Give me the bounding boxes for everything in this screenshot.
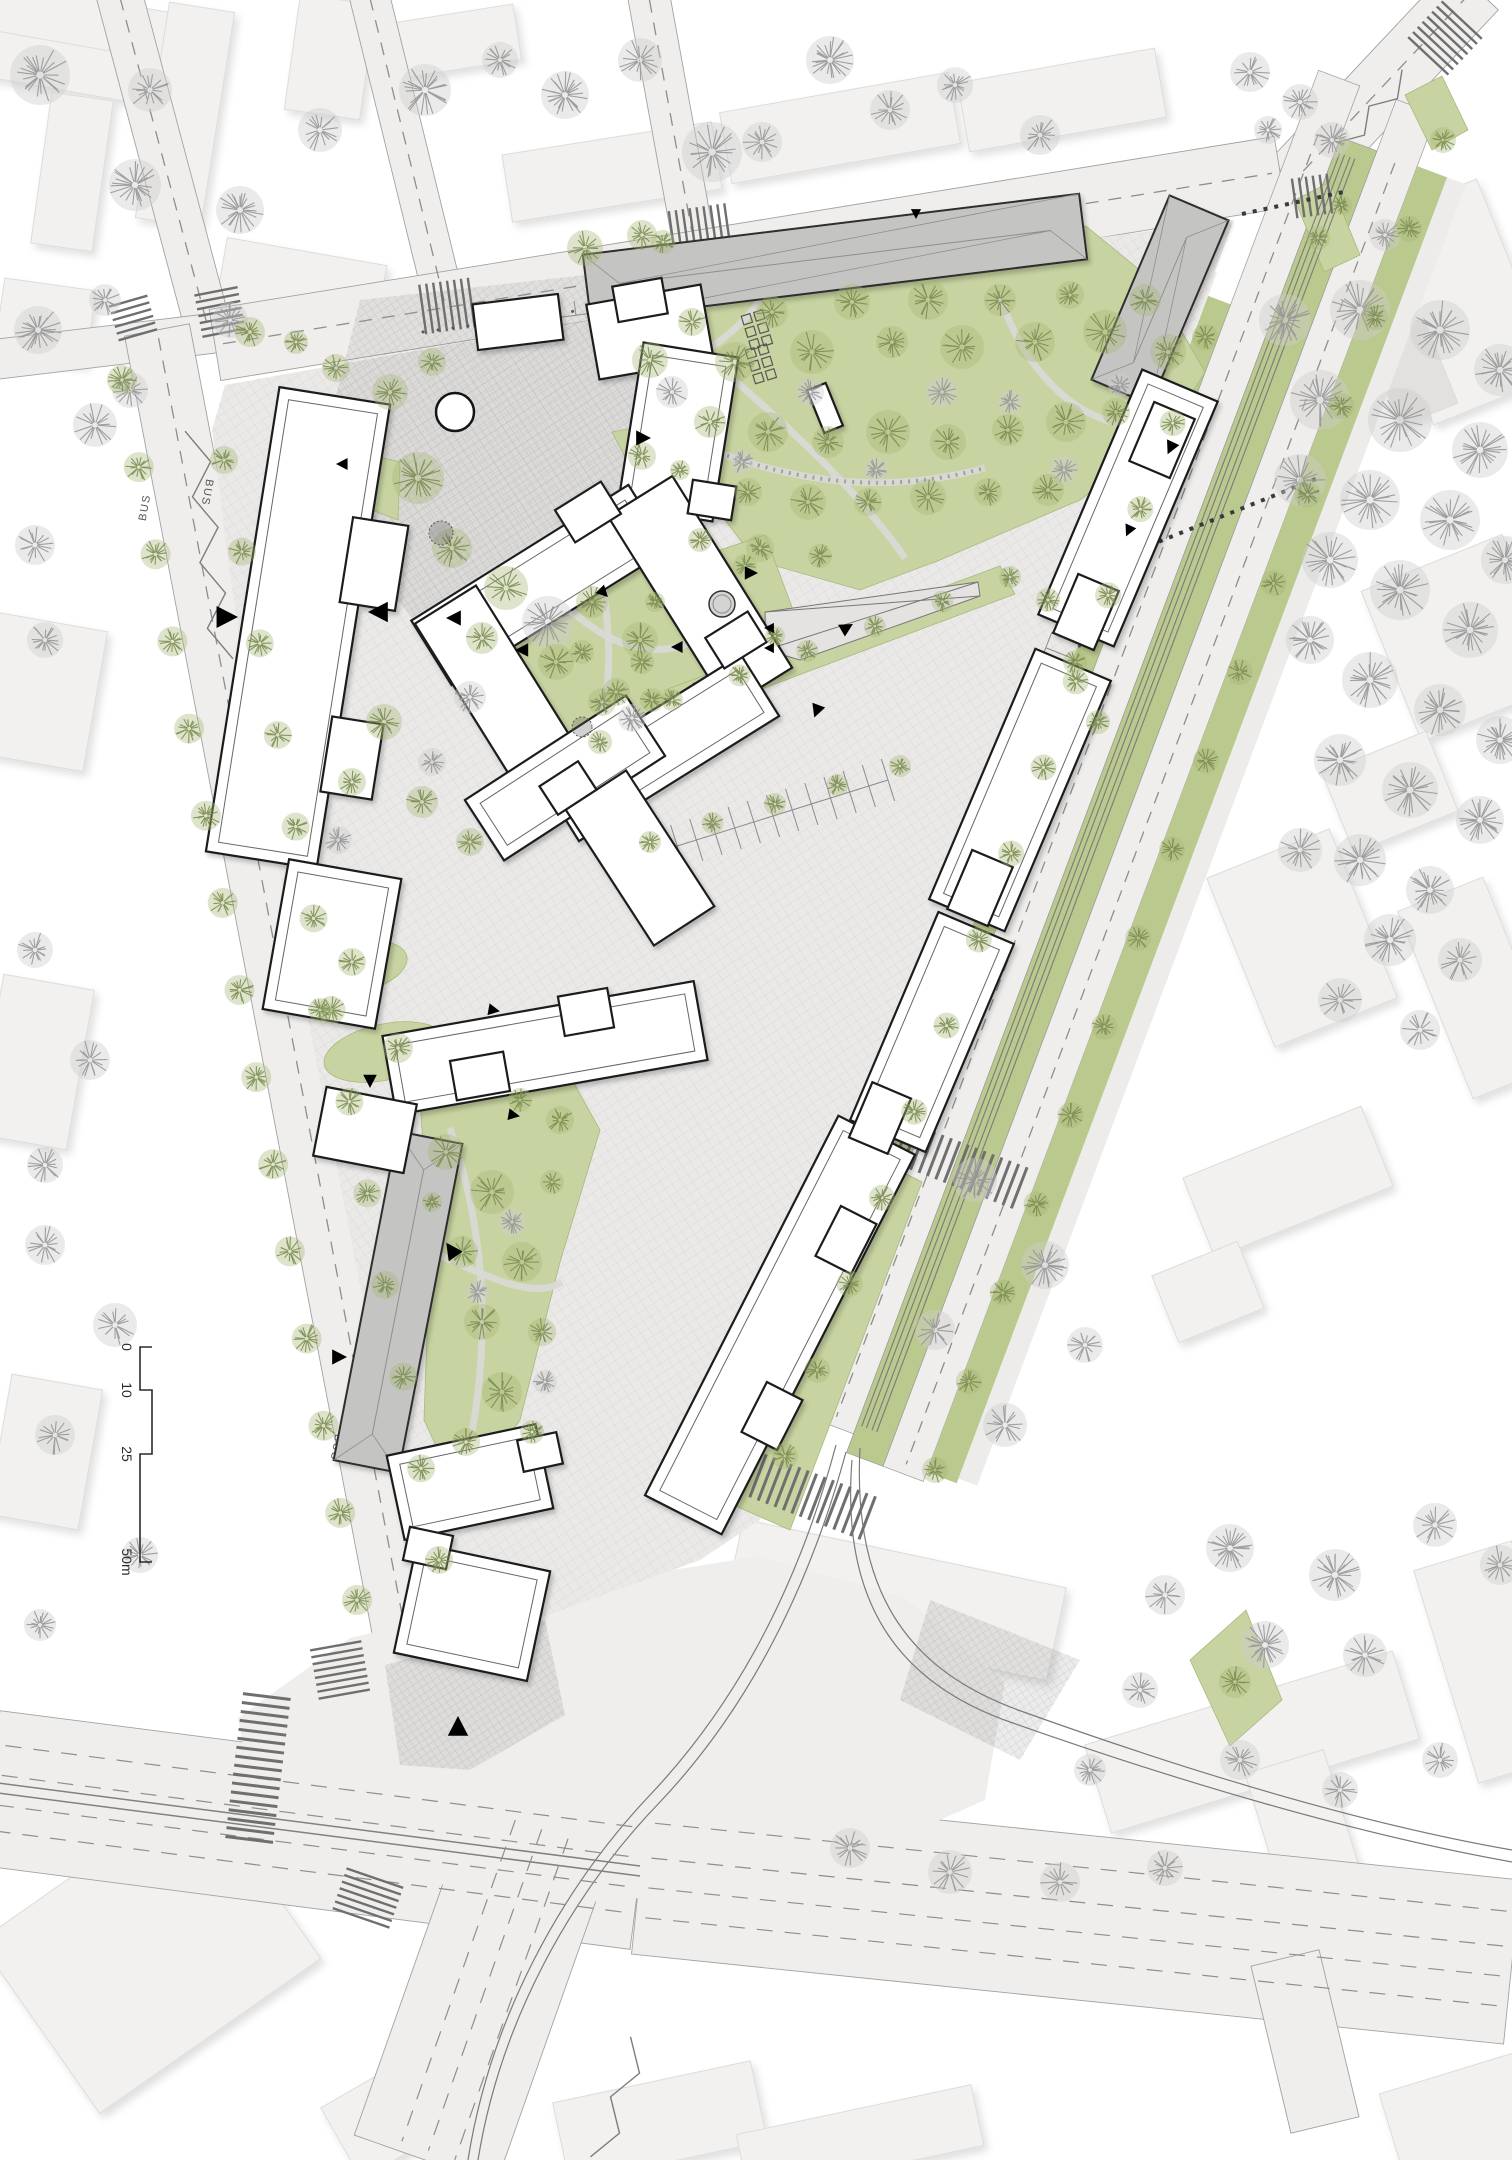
tree-crown — [1302, 532, 1358, 588]
tree-icon — [639, 831, 661, 853]
tree-crown — [482, 42, 518, 78]
tree-icon — [228, 538, 256, 566]
tree-icon — [210, 446, 238, 474]
tree-icon — [1015, 322, 1055, 362]
tree-icon — [366, 704, 402, 740]
context-tree-icon — [1410, 300, 1470, 360]
tree-crown — [418, 348, 446, 376]
tree-crown — [1438, 938, 1482, 982]
tree-icon — [1362, 304, 1388, 330]
context-tree-icon — [399, 64, 451, 116]
context-tree-icon — [1067, 1327, 1103, 1363]
tree-crown — [1430, 127, 1456, 153]
tree-crown — [1295, 482, 1321, 508]
tree-crown — [1227, 659, 1253, 685]
tree-crown — [470, 1170, 514, 1214]
tree-icon — [425, 1546, 453, 1574]
tree-crown — [399, 64, 451, 116]
tree-crown — [1414, 684, 1466, 736]
tree-icon — [588, 730, 612, 754]
tree-icon — [1192, 324, 1218, 350]
tree-icon — [372, 374, 408, 410]
context-tree-icon — [1021, 1241, 1069, 1289]
context-tree-icon — [742, 122, 782, 162]
tree-icon — [282, 813, 310, 841]
context-tree-icon — [618, 38, 662, 82]
tree-icon — [908, 280, 948, 320]
tree-crown — [966, 927, 992, 953]
tree-icon — [670, 460, 690, 480]
tree-crown — [141, 539, 171, 569]
tree-crown — [1314, 122, 1350, 158]
tree-icon — [1102, 398, 1130, 426]
context-tree-icon — [482, 42, 518, 78]
context-tree-icon — [1406, 866, 1454, 914]
tree-crown — [715, 342, 755, 382]
tree-crown — [1400, 1010, 1440, 1050]
tree-icon — [383, 1033, 413, 1063]
context-tree-icon — [796, 378, 824, 406]
tree-icon — [141, 539, 171, 569]
context-tree-icon — [522, 596, 574, 648]
tree-icon — [371, 1271, 399, 1299]
context-tree-icon — [541, 71, 589, 119]
tree-icon — [508, 1088, 532, 1112]
tree-icon — [678, 308, 706, 336]
tree-crown — [1021, 1241, 1069, 1289]
site-plan-svg: BUSBUSBUS 0102550m — [0, 0, 1512, 2160]
scale-label: 10 — [119, 1382, 135, 1398]
tree-crown — [1368, 388, 1432, 452]
tree-icon — [1160, 410, 1186, 436]
tree-icon — [1328, 393, 1354, 419]
tree-crown — [645, 592, 665, 612]
building — [340, 517, 409, 611]
tree-icon — [901, 1099, 927, 1125]
tree-icon — [1295, 482, 1321, 508]
tree-icon — [470, 1170, 514, 1214]
tree-icon — [1150, 334, 1186, 370]
tree-icon — [338, 948, 366, 976]
tree-crown — [930, 424, 966, 460]
context-tree-icon — [937, 67, 973, 103]
tree-icon — [482, 1372, 522, 1412]
context-tree-icon — [1342, 652, 1398, 708]
tree-icon — [1127, 496, 1153, 522]
tree-icon — [694, 406, 726, 438]
tree-icon — [622, 622, 658, 658]
context-tree-icon — [928, 1850, 972, 1894]
context-tree-icon — [1369, 219, 1401, 251]
context-tree-icon — [25, 1225, 65, 1265]
tree-crown — [937, 67, 973, 103]
context-tree-icon — [1322, 1772, 1358, 1808]
tree-crown — [1150, 334, 1186, 370]
tree-crown — [1362, 304, 1388, 330]
tree-crown — [1046, 402, 1086, 442]
context-tree-icon — [864, 458, 888, 482]
context-tree-icon — [1364, 914, 1416, 966]
tree-icon — [966, 927, 992, 953]
tree-icon — [235, 317, 265, 347]
tree-icon — [734, 478, 762, 506]
tree-crown — [908, 280, 948, 320]
tree-icon — [1024, 1191, 1050, 1217]
tree-crown — [734, 478, 762, 506]
tree-icon — [1095, 582, 1121, 608]
tree-crown — [1259, 294, 1311, 346]
tree-crown — [292, 1324, 322, 1354]
tree-crown — [89, 284, 121, 316]
context-tree-icon — [24, 1609, 56, 1641]
context-tree-icon — [1145, 1575, 1185, 1615]
tree-crown — [1410, 300, 1470, 360]
tree-icon — [729, 664, 751, 686]
tree-icon — [790, 484, 826, 520]
tree-icon — [796, 640, 818, 662]
context-tree-icon — [27, 1147, 63, 1183]
context-tree-icon — [1334, 834, 1386, 886]
tree-icon — [1332, 195, 1352, 215]
tree-icon — [300, 904, 328, 932]
building — [450, 1052, 510, 1101]
context-tree-icon — [1278, 828, 1322, 872]
tree-crown — [1420, 490, 1480, 550]
tree-icon — [628, 442, 656, 470]
context-tree-icon — [70, 1040, 110, 1080]
context-tree-icon — [998, 390, 1022, 414]
tree-icon — [225, 975, 255, 1005]
context-tree-icon — [10, 45, 70, 105]
tree-crown — [520, 1420, 544, 1444]
context-tree-icon — [109, 159, 161, 211]
tree-crown — [656, 376, 688, 408]
context-tree-icon — [1074, 1754, 1106, 1786]
context-tree-icon — [1422, 1742, 1458, 1778]
tree-icon — [834, 284, 870, 320]
tree-crown — [484, 566, 528, 610]
tree-crown — [522, 596, 574, 648]
context-tree-icon — [1206, 1524, 1254, 1572]
context-tree-icon — [1420, 490, 1480, 550]
tree-icon — [502, 1242, 542, 1282]
tree-icon — [264, 721, 292, 749]
scale-label: 50m — [119, 1548, 135, 1575]
tree-icon — [1030, 754, 1056, 780]
tree-icon — [570, 640, 594, 664]
tree-icon — [1227, 659, 1253, 685]
tree-crown — [1370, 560, 1430, 620]
context-tree-icon — [1286, 616, 1334, 664]
context-tree-icon — [983, 1403, 1027, 1447]
tree-icon — [246, 629, 274, 657]
tree-icon — [1083, 310, 1127, 354]
tree-icon — [748, 412, 788, 452]
tree-icon — [1306, 226, 1330, 250]
scale-label: 0 — [119, 1343, 135, 1351]
tree-crown — [216, 186, 264, 234]
tree-icon — [602, 678, 630, 706]
tree-crown — [10, 45, 70, 105]
tree-icon — [338, 768, 366, 796]
tree-icon — [827, 774, 849, 796]
tree-crown — [1147, 1850, 1183, 1886]
tree-icon — [1056, 281, 1084, 309]
tree-icon — [567, 230, 603, 266]
tree-icon — [520, 1420, 544, 1444]
tree-icon — [876, 326, 908, 358]
tree-icon — [389, 1363, 417, 1391]
building — [612, 278, 667, 322]
tree-crown — [1220, 1740, 1260, 1780]
context-tree-icon — [1370, 560, 1430, 620]
tree-icon — [428, 1134, 464, 1170]
context-tree-icon — [1241, 1621, 1289, 1669]
fountain-circle — [436, 393, 474, 431]
tree-icon — [452, 1428, 480, 1456]
tree-crown — [371, 1271, 399, 1299]
context-tree-icon — [1438, 938, 1482, 982]
tree-crown — [208, 888, 238, 918]
tree-icon — [990, 1280, 1016, 1306]
tree-icon — [1032, 474, 1064, 506]
context-tree-icon — [1414, 684, 1466, 736]
tree-crown — [383, 1033, 413, 1063]
context-tree-icon — [1302, 532, 1358, 588]
tree-icon — [930, 424, 966, 460]
tree-icon — [258, 1149, 288, 1179]
context-tree-icon — [1400, 1010, 1440, 1050]
tree-crown — [866, 410, 910, 454]
context-tree-icon — [1147, 1850, 1183, 1886]
context-tree-icon — [926, 376, 958, 408]
context-tree-icon — [17, 932, 53, 968]
context-tree-icon — [1309, 1549, 1361, 1601]
building — [473, 294, 564, 350]
tree-icon — [484, 566, 528, 610]
tree-icon — [1396, 216, 1422, 242]
context-tree-icon — [915, 1310, 955, 1350]
tree-crown — [124, 452, 154, 482]
tree-crown — [1261, 570, 1287, 596]
tree-crown — [235, 317, 265, 347]
tree-crown — [325, 1498, 355, 1528]
context-tree-icon — [1282, 84, 1318, 120]
context-tree-icon — [324, 826, 352, 854]
tree-crown — [1406, 866, 1454, 914]
tree-crown — [790, 330, 834, 374]
context-tree-icon — [1108, 373, 1132, 397]
context-tree-icon — [1314, 734, 1366, 786]
context-tree-icon — [1254, 116, 1282, 144]
context-tree-icon — [656, 376, 688, 408]
tree-icon — [464, 1304, 500, 1340]
tree-icon — [466, 622, 498, 654]
tree-icon — [1261, 570, 1287, 596]
tree-icon — [837, 1271, 863, 1297]
tree-icon — [1057, 1102, 1083, 1128]
tree-crown — [834, 284, 870, 320]
tree-icon — [992, 414, 1024, 446]
context-tree-icon — [466, 1280, 490, 1304]
tree-crown — [1230, 52, 1270, 92]
context-tree-icon — [454, 681, 486, 713]
tree-icon — [107, 365, 137, 395]
tree-crown — [335, 1088, 363, 1116]
tree-crown — [682, 122, 742, 182]
tree-crown — [228, 538, 256, 566]
context-tree-icon — [73, 403, 117, 447]
tree-icon — [715, 342, 755, 382]
tree-icon — [956, 1368, 982, 1394]
tree-icon — [764, 793, 786, 815]
tree-crown — [17, 932, 53, 968]
tree-icon — [406, 786, 438, 818]
building — [558, 988, 614, 1036]
tree-crown — [353, 1179, 381, 1207]
tree-crown — [1083, 310, 1127, 354]
tree-icon — [756, 296, 788, 328]
context-tree-icon — [682, 122, 742, 182]
tree-crown — [15, 525, 55, 565]
tree-icon — [157, 626, 187, 656]
site-plan: BUSBUSBUS 0102550m — [0, 0, 1512, 2160]
context-tree-icon — [533, 1370, 557, 1394]
tree-crown — [1241, 1621, 1289, 1669]
context-tree-icon — [1368, 388, 1432, 452]
tree-crown — [870, 90, 910, 130]
context-tree-icon — [498, 1208, 526, 1236]
tree-crown — [1254, 116, 1282, 144]
tree-icon — [1219, 1666, 1251, 1698]
tree-icon — [284, 330, 308, 354]
building — [688, 480, 737, 520]
tree-crown — [428, 1134, 464, 1170]
tree-crown — [366, 704, 402, 740]
tree-icon — [241, 1062, 271, 1092]
context-tree-icon — [806, 36, 854, 84]
tree-crown — [812, 426, 844, 458]
tree-crown — [210, 446, 238, 474]
tree-crown — [392, 452, 444, 504]
tree-icon — [999, 566, 1021, 588]
tree-icon — [688, 528, 712, 552]
tree-crown — [602, 678, 630, 706]
tree-crown — [128, 68, 172, 112]
tree-icon — [1193, 748, 1219, 774]
tree-icon — [804, 1357, 830, 1383]
tree-crown — [694, 406, 726, 438]
tree-icon — [292, 1324, 322, 1354]
tree-icon — [772, 1443, 798, 1469]
context-tree-icon — [1020, 115, 1060, 155]
hedge-circle — [429, 521, 453, 545]
tree-icon — [191, 801, 221, 831]
tree-icon — [866, 410, 910, 454]
tree-icon — [124, 452, 154, 482]
tree-icon — [910, 479, 946, 515]
tree-icon — [974, 478, 1002, 506]
context-tree-icon — [418, 748, 446, 776]
tree-icon — [632, 342, 668, 378]
tree-crown — [73, 403, 117, 447]
tree-crown — [528, 1318, 556, 1346]
tree-crown — [1286, 616, 1334, 664]
tree-icon — [308, 1411, 338, 1441]
tree-icon — [407, 1454, 435, 1482]
tree-icon — [922, 1457, 948, 1483]
tree-icon — [869, 1185, 895, 1211]
context-tree-icon — [89, 284, 121, 316]
tree-crown — [1306, 226, 1330, 250]
context-tree-icon — [14, 306, 62, 354]
tree-crown — [225, 975, 255, 1005]
context-tree-icon — [1413, 1503, 1457, 1547]
hedge-circle — [572, 717, 592, 737]
tree-crown — [1364, 914, 1416, 966]
tree-icon — [984, 284, 1016, 316]
tree-icon — [1159, 836, 1185, 862]
context-tree-icon — [870, 90, 910, 130]
tree-icon — [538, 644, 574, 680]
tree-icon — [645, 592, 665, 612]
tree-icon — [998, 840, 1024, 866]
tree-icon — [1091, 1014, 1117, 1040]
tree-crown — [298, 108, 342, 152]
tree-crown — [1369, 219, 1401, 251]
context-tree-icon — [216, 186, 264, 234]
tree-icon — [456, 828, 484, 856]
context-tree-icon — [1318, 978, 1362, 1022]
tree-icon — [322, 354, 350, 382]
tree-icon — [342, 1585, 372, 1615]
tree-crown — [1095, 582, 1121, 608]
context-tree-icon — [1343, 1633, 1387, 1677]
tree-crown — [191, 801, 221, 831]
tree-icon — [651, 230, 675, 254]
context-tree-icon — [1314, 122, 1350, 158]
tree-crown — [93, 1303, 137, 1347]
tree-crown — [1129, 284, 1161, 316]
context-tree-icon — [298, 108, 342, 152]
context-tree-icon — [1452, 422, 1508, 478]
tree-icon — [854, 488, 882, 516]
tree-icon — [528, 1318, 556, 1346]
context-tree-icon — [730, 450, 754, 474]
tree-icon — [1063, 650, 1087, 674]
tree-icon — [335, 1088, 363, 1116]
context-tree-icon — [1122, 1672, 1158, 1708]
tree-icon — [934, 1013, 960, 1039]
tree-icon — [1125, 925, 1151, 951]
tree-icon — [889, 755, 911, 777]
context-tree-icon — [618, 704, 646, 732]
context-tree-icon — [1040, 1862, 1080, 1902]
context-tree-icon — [93, 1303, 137, 1347]
tree-crown — [974, 478, 1002, 506]
tree-crown — [282, 813, 310, 841]
context-tree-icon — [15, 525, 55, 565]
tree-crown — [628, 442, 656, 470]
context-tree-icon — [1259, 294, 1311, 346]
tree-icon — [940, 325, 984, 369]
tree-icon — [640, 688, 664, 712]
context-tree-icon — [830, 1828, 870, 1868]
tree-icon — [1086, 710, 1110, 734]
tree-icon — [540, 1170, 564, 1194]
tree-crown — [1159, 836, 1185, 862]
tree-icon — [790, 330, 834, 374]
